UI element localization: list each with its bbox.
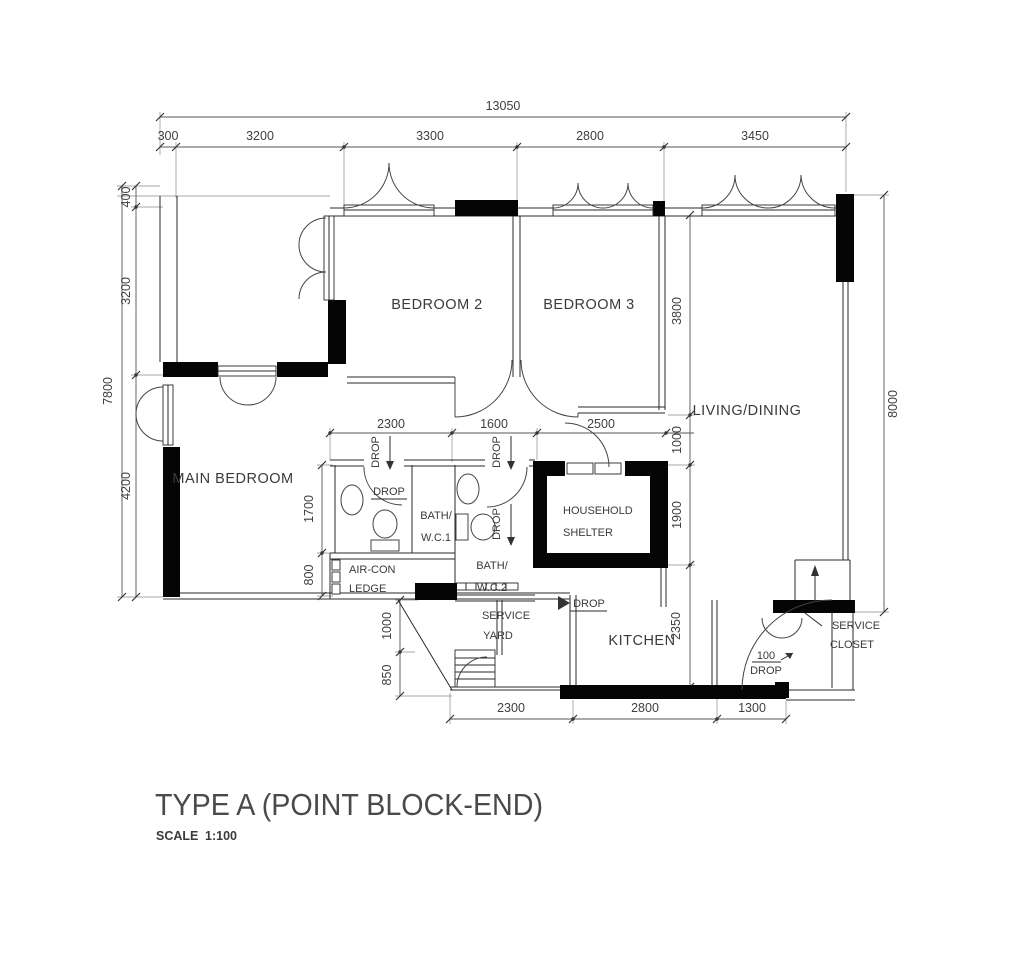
bedroom3-door-arc (521, 360, 578, 417)
entrance-second-leaf (762, 618, 802, 638)
dim-right-inner-0: 3800 (670, 297, 684, 325)
room-label-bath1-line2: W.C.1 (421, 532, 451, 544)
bath1-basin (341, 485, 363, 515)
thin-walls (163, 208, 855, 700)
bedroom2-door-arc (455, 360, 512, 417)
scale-value: 1:100 (205, 829, 237, 843)
dim-left-1: 3200 (119, 277, 133, 305)
dim-bath-0: 1700 (302, 495, 316, 523)
dim-yard-1: 850 (380, 665, 394, 686)
drop-100-label: DROP (750, 665, 782, 677)
wall-bedroom2-left (328, 300, 346, 364)
black-walls (163, 194, 855, 699)
dim-right-inner-2: 1900 (670, 501, 684, 529)
dim-left-0: 400 (119, 187, 133, 208)
wall-mainbed-top-right (277, 362, 328, 377)
dim-top-2: 3300 (416, 129, 444, 143)
dim-left-2: 4200 (119, 472, 133, 500)
dim-bath-1: 800 (302, 565, 316, 586)
dim-bottom-0: 2300 (497, 701, 525, 715)
dim-right-total: 8000 (886, 390, 900, 418)
service-closet-leader-line (805, 613, 822, 626)
wall-top-column-1 (455, 200, 518, 216)
room-label-aircon-line1: AIR-CON (349, 564, 396, 576)
bath2-door-arc (487, 467, 527, 507)
room-label-living-dining: LIVING/DINING (693, 403, 802, 419)
service-yard-louver-window (455, 650, 495, 687)
wall-top-column-2 (653, 201, 665, 216)
floor-plan-drawing: 13050 300 3200 3300 2800 3450 7800 400 3… (0, 0, 1024, 962)
dim-bottom-2: 1300 (738, 701, 766, 715)
dim-right-inner-1: 1000 (670, 426, 684, 454)
drop-label-bath2-inner: DROP (491, 508, 503, 540)
scale-label: SCALE (156, 829, 198, 843)
bath2-basin (457, 474, 479, 504)
wall-top-right-corner (836, 194, 854, 282)
room-label-kitchen: KITCHEN (608, 633, 675, 649)
room-label-shelter-line1: HOUSEHOLD (563, 505, 633, 517)
drop-100-arrow (785, 653, 793, 659)
drop-arrow-left (558, 596, 570, 610)
drop-label-service-yard: DROP (573, 598, 605, 610)
wall-kitchen-bottom (560, 685, 786, 699)
dim-top-3: 2800 (576, 129, 604, 143)
bath2-toilet-tank (456, 514, 468, 540)
dim-mid-2: 2500 (587, 417, 615, 431)
room-label-shelter-line2: SHELTER (563, 527, 613, 539)
wall-entrance-block (775, 682, 789, 698)
dim-left-total: 7800 (101, 377, 115, 405)
dim-yard-0: 1000 (380, 612, 394, 640)
room-label-main-bedroom: MAIN BEDROOM (172, 471, 293, 487)
room-label-aircon-line2: LEDGE (349, 583, 386, 595)
drawing-title: TYPE A (POINT BLOCK-END) (155, 787, 543, 822)
room-label-service-closet-line1: SERVICE (832, 620, 880, 632)
room-label-bath2-line1: BATH/ (476, 560, 509, 572)
drop-label-bath2-entry: DROP (491, 436, 503, 468)
room-label-service-yard-line1: SERVICE (482, 610, 530, 622)
room-label-bedroom2: BEDROOM 2 (391, 297, 483, 313)
bath1-toilet-tank (371, 540, 399, 551)
room-label-service-yard-line2: YARD (483, 630, 513, 642)
wall-mainbed-top-left (163, 362, 218, 377)
service-closet-arrow-head (811, 565, 819, 576)
bath1-toilet-bowl (373, 510, 397, 538)
dim-bottom-1: 2800 (631, 701, 659, 715)
room-label-bath1-line1: BATH/ (420, 510, 453, 522)
dim-top-4: 3450 (741, 129, 769, 143)
title-block: TYPE A (POINT BLOCK-END) SCALE 1:100 (155, 787, 543, 843)
room-label-service-closet-line2: CLOSET (830, 639, 874, 651)
drop-label-bath1-entry: DROP (370, 436, 382, 468)
dim-top-0: 300 (158, 129, 179, 143)
drop-100-value: 100 (757, 650, 775, 662)
room-label-bedroom3: BEDROOM 3 (543, 297, 635, 313)
wall-aircon-yard-block (415, 583, 457, 600)
wall-mainbed-left (163, 447, 180, 597)
floor-plan-page: 13050 300 3200 3300 2800 3450 7800 400 3… (0, 0, 1024, 962)
room-label-bath2-line2: W.C.2 (477, 582, 507, 594)
dim-top-total: 13050 (486, 99, 521, 113)
drop-label-bath1-inner: DROP (373, 486, 405, 498)
dim-top-1: 3200 (246, 129, 274, 143)
dim-mid-0: 2300 (377, 417, 405, 431)
dim-mid-1: 1600 (480, 417, 508, 431)
